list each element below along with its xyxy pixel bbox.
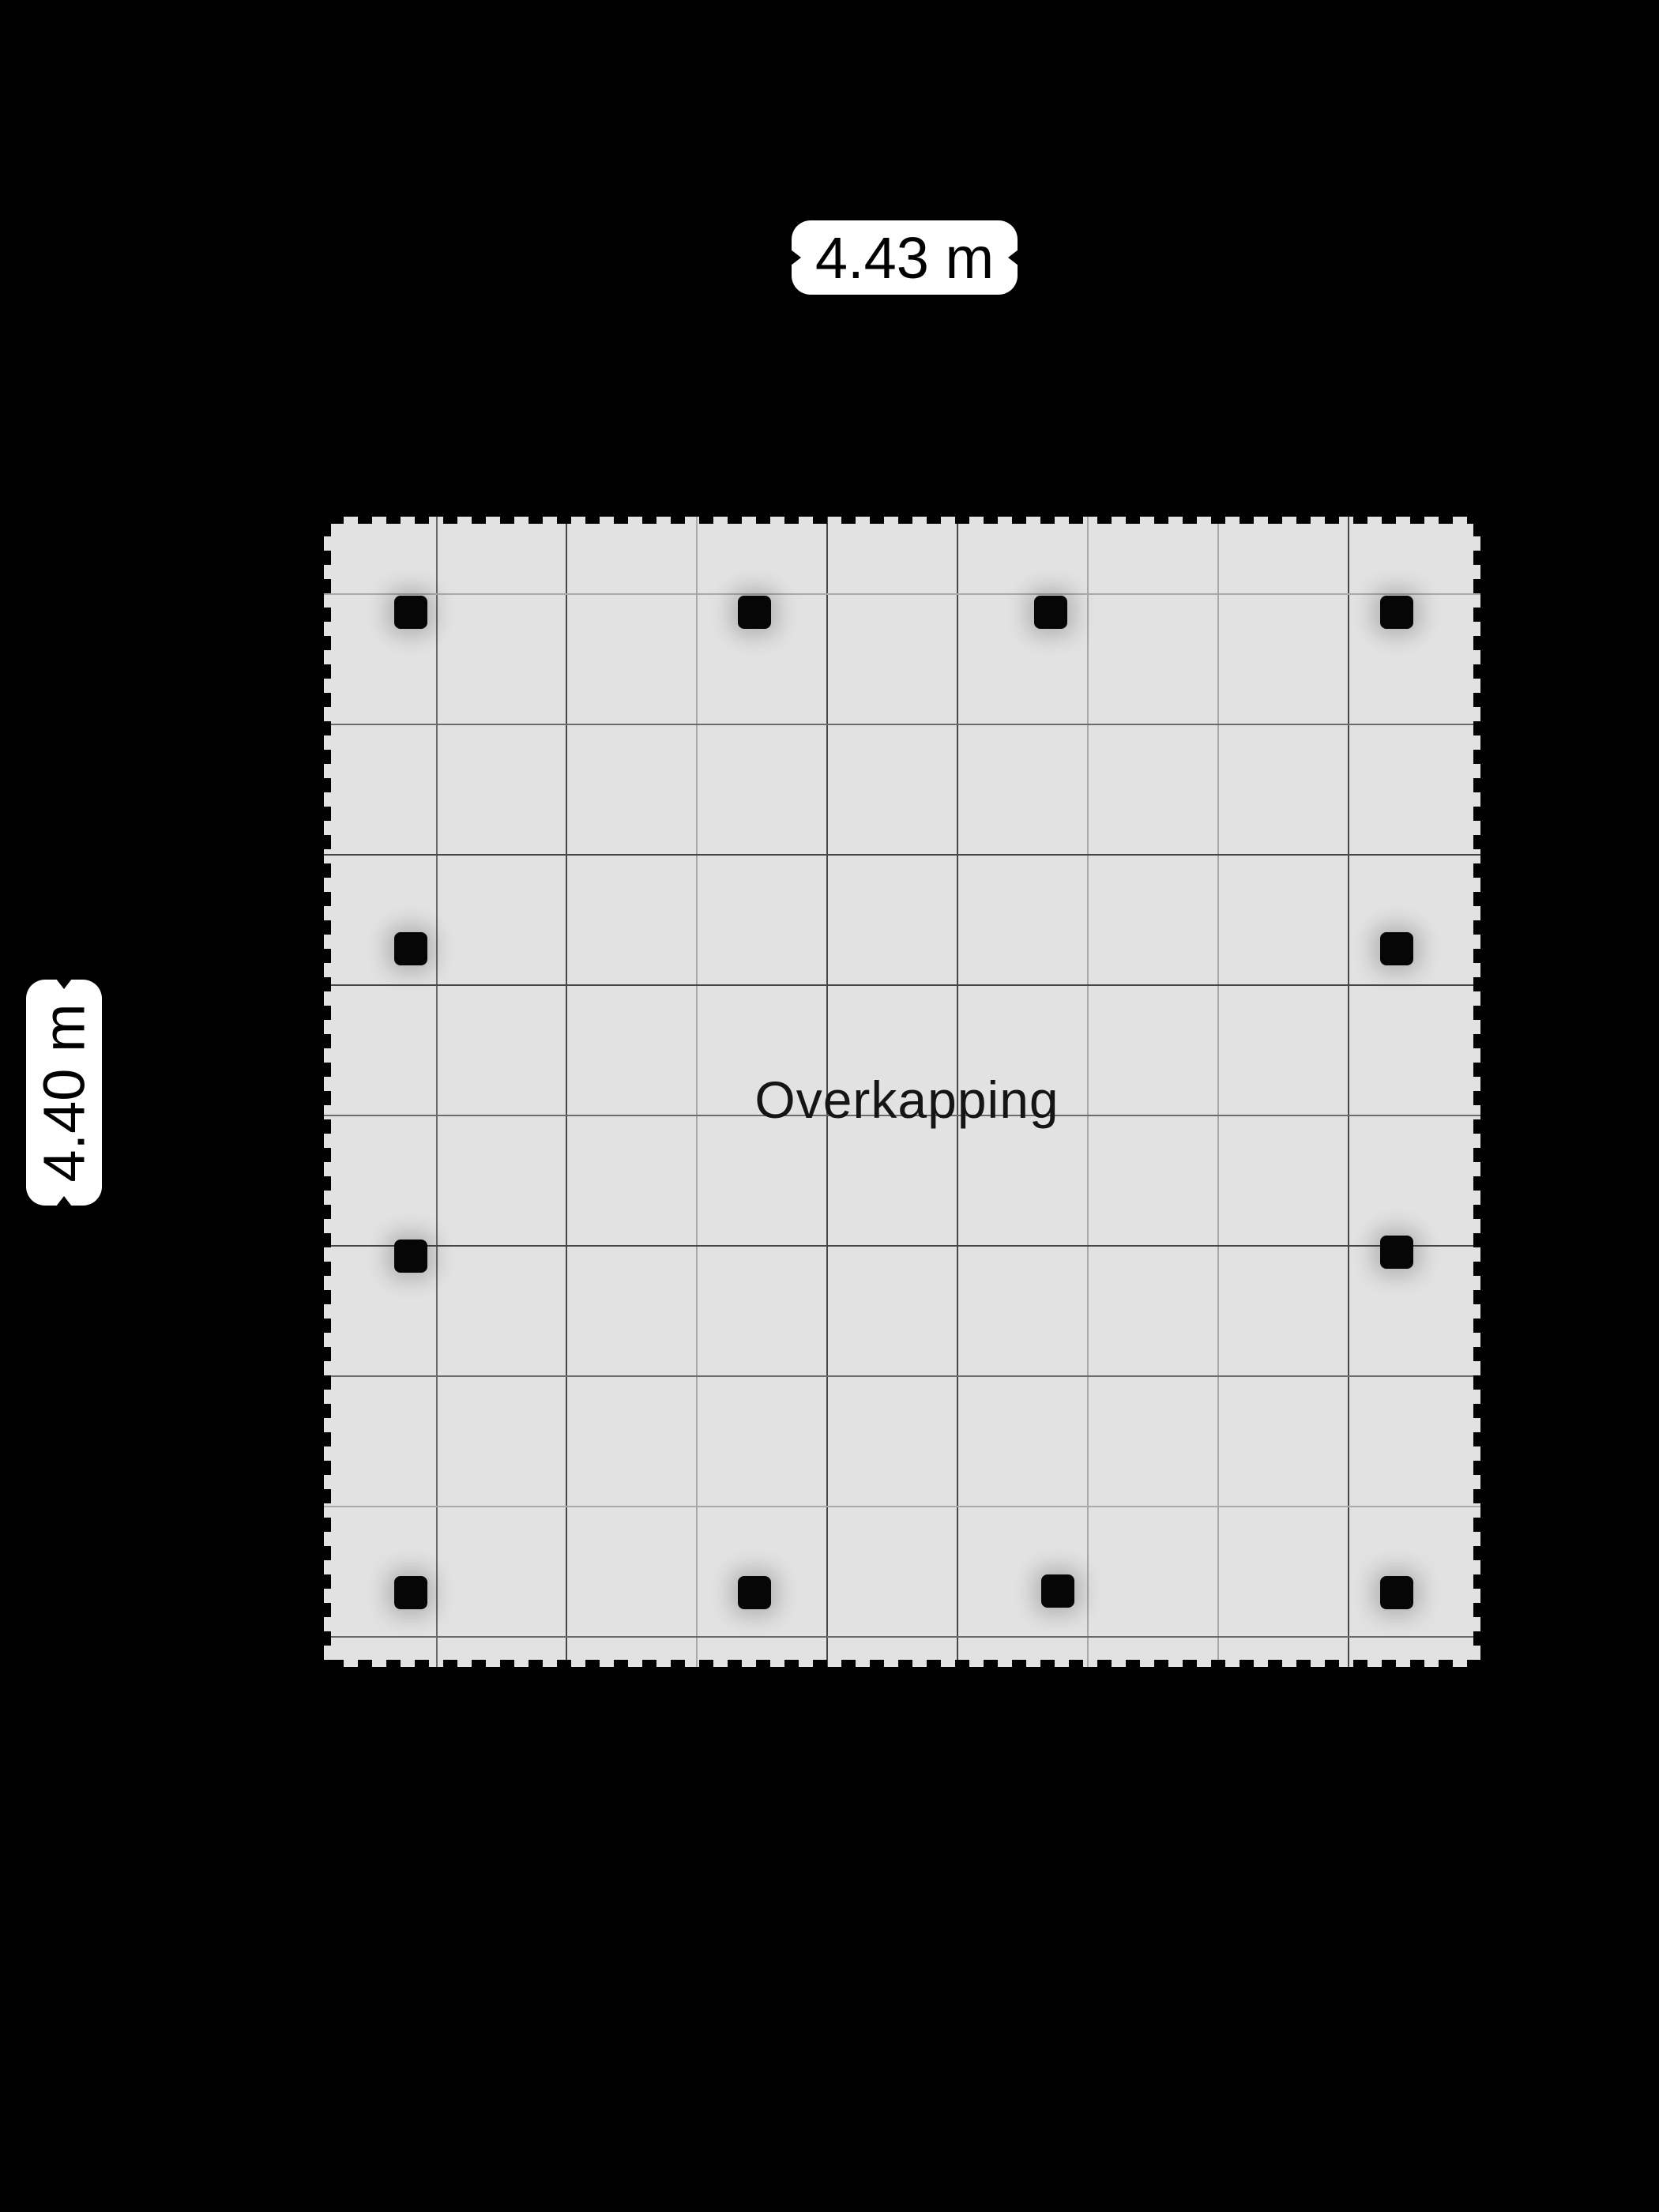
floorplan-canvas: Overkapping 4.43 m 4.40 m <box>0 0 1659 2212</box>
support-post <box>394 596 427 629</box>
dashed-edge-right <box>1473 517 1480 1667</box>
dimension-arrow-icon <box>1008 250 1018 265</box>
support-post <box>1380 1236 1413 1269</box>
grid-line-vertical <box>696 517 698 1667</box>
support-post <box>394 1576 427 1609</box>
grid-line-horizontal <box>324 854 1480 856</box>
grid-line-vertical <box>1087 517 1089 1667</box>
dashed-edge-bottom <box>324 1660 1480 1667</box>
support-post <box>394 932 427 965</box>
dimension-label-width: 4.43 m <box>792 220 1018 295</box>
support-post <box>1041 1574 1074 1608</box>
dimension-label-height: 4.40 m <box>26 980 102 1206</box>
grid-line-horizontal <box>324 984 1480 986</box>
grid-line-vertical <box>436 517 438 1667</box>
support-post <box>394 1240 427 1273</box>
dashed-edge-top <box>324 517 1480 524</box>
grid-line-horizontal <box>324 1636 1480 1638</box>
support-post <box>1380 932 1413 965</box>
support-post <box>1380 1576 1413 1609</box>
grid-line-vertical <box>566 517 567 1667</box>
grid-line-horizontal <box>324 1375 1480 1377</box>
dimension-arrow-icon <box>791 250 801 265</box>
grid-line-horizontal <box>324 724 1480 725</box>
dimension-arrow-icon <box>56 979 72 989</box>
support-post <box>738 1576 771 1609</box>
dimension-text: 4.43 m <box>815 224 994 292</box>
support-post <box>1380 596 1413 629</box>
grid-line-vertical <box>1348 517 1349 1667</box>
dashed-edge-left <box>324 517 331 1667</box>
grid-line-horizontal <box>324 593 1480 595</box>
grid-line-vertical <box>1217 517 1219 1667</box>
support-post <box>738 596 771 629</box>
dimension-arrow-icon <box>56 1196 72 1206</box>
support-post <box>1034 596 1067 629</box>
dimension-text: 4.40 m <box>31 1003 98 1182</box>
grid-line-horizontal <box>324 1506 1480 1507</box>
grid-line-horizontal <box>324 1245 1480 1247</box>
room-label: Overkapping <box>754 1070 1059 1130</box>
